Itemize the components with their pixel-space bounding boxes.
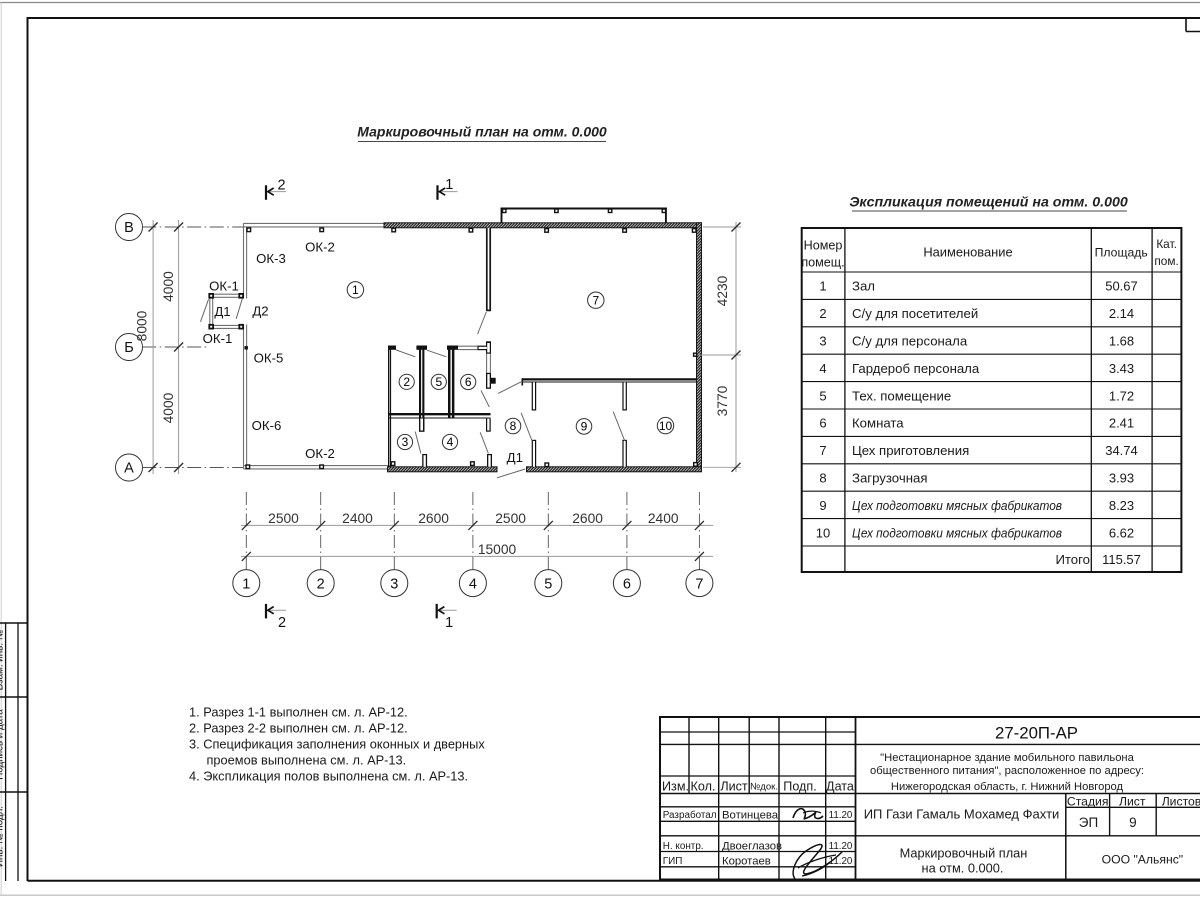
svg-text:11.20: 11.20 — [829, 856, 853, 867]
svg-text:27-20П-АР: 27-20П-АР — [995, 724, 1078, 743]
svg-text:ОК-2: ОК-2 — [305, 239, 335, 254]
svg-text:Цех подготовки мясных фабрикат: Цех подготовки мясных фабрикатов — [852, 498, 1062, 513]
svg-text:А: А — [124, 461, 134, 477]
svg-text:4230: 4230 — [715, 275, 730, 306]
svg-text:2: 2 — [819, 306, 826, 321]
svg-text:2: 2 — [278, 178, 286, 194]
svg-text:1: 1 — [242, 576, 250, 592]
svg-text:Подпись и дата: Подпись и дата — [0, 709, 6, 780]
svg-text:8000: 8000 — [135, 310, 150, 341]
svg-text:Площадь: Площадь — [1095, 246, 1148, 260]
svg-text:2.41: 2.41 — [1109, 416, 1134, 431]
svg-text:6: 6 — [623, 576, 631, 592]
svg-text:2400: 2400 — [648, 511, 679, 526]
svg-text:ГИП: ГИП — [663, 856, 683, 867]
svg-text:8: 8 — [510, 419, 517, 433]
svg-text:общественного питания", распол: общественного питания", расположенное по… — [870, 765, 1144, 777]
svg-text:5: 5 — [819, 388, 826, 403]
svg-text:Подп.: Подп. — [783, 779, 816, 793]
svg-text:Гардероб персонала: Гардероб персонала — [852, 361, 980, 376]
svg-text:Номер: Номер — [804, 239, 843, 253]
svg-text:проемов выполнена см. л. АР-13: проемов выполнена см. л. АР-13. — [207, 753, 407, 768]
svg-text:2: 2 — [317, 576, 325, 592]
svg-text:2: 2 — [278, 615, 286, 631]
svg-text:3: 3 — [402, 435, 409, 449]
svg-text:10: 10 — [816, 525, 830, 540]
svg-text:№док.: №док. — [750, 782, 778, 793]
svg-text:Лист: Лист — [1119, 794, 1146, 808]
svg-text:3770: 3770 — [715, 385, 730, 416]
svg-text:2. Разрез 2-2 выполнен см. л.: 2. Разрез 2-2 выполнен см. л. АР-12. — [189, 721, 408, 736]
svg-text:34.74: 34.74 — [1105, 443, 1138, 458]
svg-text:1.72: 1.72 — [1109, 388, 1134, 403]
svg-text:Итого: Итого — [1055, 552, 1090, 567]
svg-text:"Нестационарное здание мобильн: "Нестационарное здание мобильного павиль… — [880, 752, 1134, 764]
svg-text:3: 3 — [390, 576, 398, 592]
svg-text:Коротаев: Коротаев — [722, 855, 771, 867]
svg-text:5: 5 — [435, 375, 442, 389]
svg-text:2600: 2600 — [572, 511, 603, 526]
svg-text:1. Разрез 1-1 выполнен см. л.: 1. Разрез 1-1 выполнен см. л. АР-12. — [189, 705, 408, 720]
svg-text:7: 7 — [695, 576, 703, 592]
svg-text:Б: Б — [124, 340, 134, 356]
svg-text:ОК-1: ОК-1 — [209, 278, 239, 293]
svg-text:ОК-6: ОК-6 — [252, 418, 282, 433]
svg-text:ОК-5: ОК-5 — [254, 350, 284, 365]
svg-text:6: 6 — [465, 375, 472, 389]
svg-text:4000: 4000 — [161, 392, 176, 423]
svg-text:помещ.: помещ. — [801, 256, 844, 270]
svg-text:11.20: 11.20 — [829, 810, 853, 821]
svg-text:4: 4 — [469, 576, 477, 592]
svg-text:4000: 4000 — [161, 271, 176, 302]
svg-text:50.67: 50.67 — [1105, 279, 1138, 294]
svg-text:Инв. № подл.: Инв. № подл. — [0, 806, 6, 867]
svg-text:2500: 2500 — [268, 511, 299, 526]
svg-text:Д1: Д1 — [214, 304, 230, 319]
svg-text:пом.: пом. — [1154, 254, 1178, 268]
svg-text:ОК-3: ОК-3 — [256, 251, 286, 266]
svg-text:7: 7 — [819, 443, 826, 458]
svg-text:Стадия: Стадия — [1067, 794, 1109, 808]
svg-text:1: 1 — [445, 177, 453, 193]
svg-text:Загрузочная: Загрузочная — [852, 471, 927, 486]
svg-text:6.62: 6.62 — [1109, 525, 1134, 540]
svg-text:1: 1 — [352, 283, 359, 297]
svg-text:7: 7 — [592, 293, 599, 307]
svg-text:2500: 2500 — [495, 511, 526, 526]
svg-text:Двоеглазов: Двоеглазов — [722, 841, 782, 853]
svg-text:3.43: 3.43 — [1109, 361, 1134, 376]
svg-text:6: 6 — [819, 416, 826, 431]
svg-text:8: 8 — [819, 471, 826, 486]
svg-text:4: 4 — [819, 361, 826, 376]
svg-text:1.68: 1.68 — [1109, 334, 1134, 349]
svg-text:Цех подготовки мясных фабрикат: Цех подготовки мясных фабрикатов — [852, 525, 1062, 540]
svg-text:Н. контр.: Н. контр. — [663, 841, 704, 852]
svg-text:ЭП: ЭП — [1079, 815, 1098, 830]
svg-text:3: 3 — [819, 334, 826, 349]
svg-text:Зал: Зал — [852, 279, 875, 294]
svg-text:Дата: Дата — [826, 779, 854, 793]
svg-text:Взам. инв. №: Взам. инв. № — [0, 630, 6, 691]
svg-text:2.14: 2.14 — [1109, 306, 1134, 321]
svg-text:Комната: Комната — [852, 416, 904, 431]
svg-text:10: 10 — [659, 419, 673, 433]
svg-text:Кол.: Кол. — [691, 779, 716, 793]
svg-text:ОК-1: ОК-1 — [203, 331, 233, 346]
svg-text:8.23: 8.23 — [1109, 498, 1134, 513]
svg-text:2400: 2400 — [342, 511, 373, 526]
svg-text:Д1: Д1 — [507, 450, 523, 465]
svg-text:9: 9 — [819, 498, 826, 513]
svg-text:ООО "Альянс": ООО "Альянс" — [1102, 852, 1184, 866]
svg-text:11.20: 11.20 — [829, 841, 853, 852]
svg-text:2: 2 — [403, 375, 410, 389]
svg-text:5: 5 — [544, 576, 552, 592]
svg-text:Лист: Лист — [720, 779, 748, 793]
svg-text:С/у для посетителей: С/у для посетителей — [852, 306, 978, 321]
svg-text:Наименование: Наименование — [923, 245, 1012, 260]
svg-text:4. Экспликация полов выполнена: 4. Экспликация полов выполнена см. л. АР… — [189, 769, 468, 784]
svg-text:Тех. помещение: Тех. помещение — [852, 388, 951, 403]
svg-text:115.57: 115.57 — [1102, 552, 1141, 567]
svg-text:Нижегородская область, г. Нижн: Нижегородская область, г. Нижний Новгоро… — [891, 781, 1124, 793]
svg-text:Д2: Д2 — [252, 303, 268, 318]
svg-text:Экспликация помещений на отм.: Экспликация помещений на отм. 0.000 — [849, 195, 1128, 211]
svg-text:4: 4 — [447, 435, 454, 449]
svg-text:ОК-2: ОК-2 — [305, 446, 335, 461]
svg-text:Изм.: Изм. — [662, 779, 689, 793]
svg-text:Вотинцева: Вотинцева — [722, 810, 779, 822]
svg-text:3.93: 3.93 — [1109, 471, 1134, 486]
svg-text:2600: 2600 — [418, 511, 449, 526]
svg-text:Маркировочный план на отм. 0.0: Маркировочный план на отм. 0.000 — [357, 124, 607, 140]
svg-text:9: 9 — [1129, 815, 1137, 830]
svg-text:ИП Гази Гамаль Мохамед Фахти: ИП Гази Гамаль Мохамед Фахти — [864, 806, 1060, 821]
svg-text:1: 1 — [819, 279, 826, 294]
svg-text:Маркировочный план: Маркировочный план — [900, 846, 1028, 861]
svg-text:1: 1 — [445, 615, 453, 631]
svg-text:Листов: Листов — [1162, 794, 1200, 808]
svg-text:3. Спецификация заполнения око: 3. Спецификация заполнения оконных и две… — [189, 737, 485, 752]
svg-text:Кат.: Кат. — [1156, 237, 1177, 251]
svg-text:на отм. 0.000.: на отм. 0.000. — [922, 860, 1004, 875]
svg-text:С/у для персонала: С/у для персонала — [852, 334, 968, 349]
svg-text:Цех приготовления: Цех приготовления — [852, 443, 969, 458]
svg-text:9: 9 — [581, 420, 588, 434]
svg-text:В: В — [124, 220, 134, 236]
svg-text:Разработал: Разработал — [663, 810, 717, 821]
svg-text:15000: 15000 — [478, 542, 517, 557]
